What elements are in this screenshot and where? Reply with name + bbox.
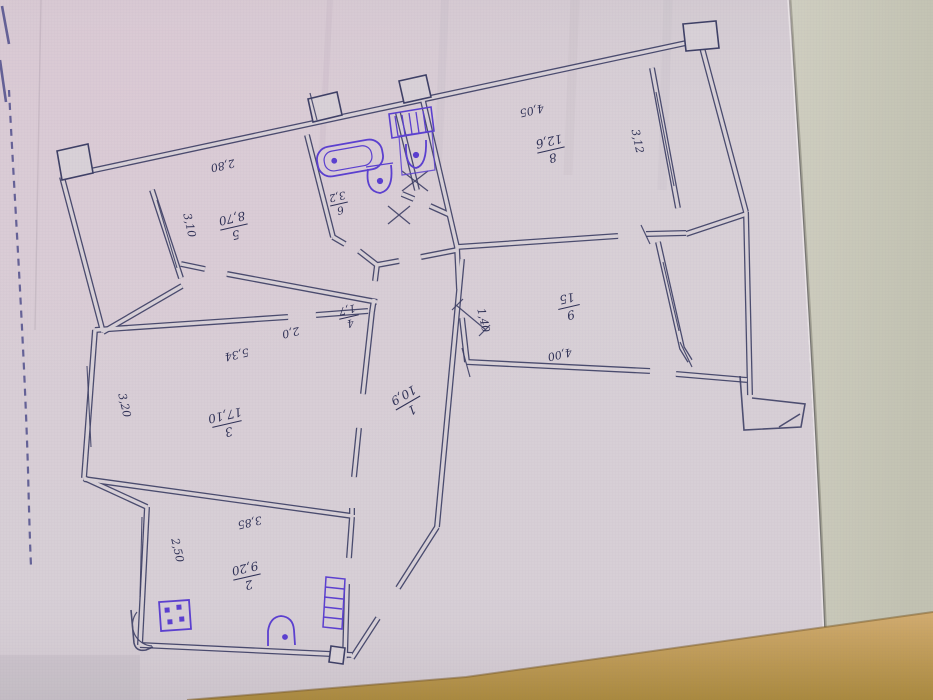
floor-plan-svg: 1 10,9 2 9,20 3 17,10 4 1,7 5 8,70 6 3,2 [0,0,933,700]
photo-of-floor-plan: 1 10,9 2 9,20 3 17,10 4 1,7 5 8,70 6 3,2 [0,0,933,700]
screen-moire-overlay [0,0,933,700]
